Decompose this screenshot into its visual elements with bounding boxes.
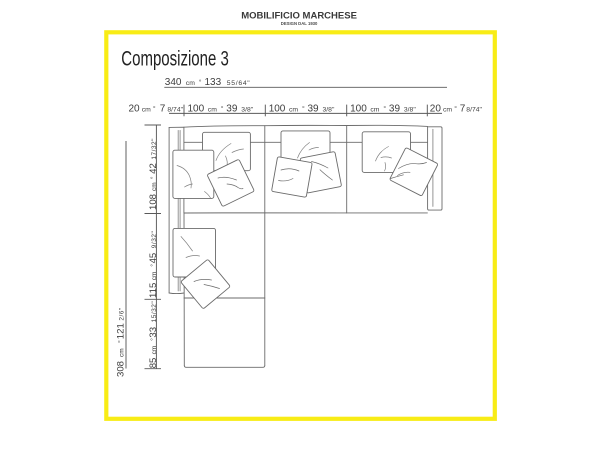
svg-text:Composizione 3: Composizione 3: [121, 47, 229, 71]
svg-text:MOBILIFICIO MARCHESE: MOBILIFICIO MARCHESE: [241, 11, 357, 22]
svg-text:DESIGN DAL 1930: DESIGN DAL 1930: [281, 21, 318, 26]
